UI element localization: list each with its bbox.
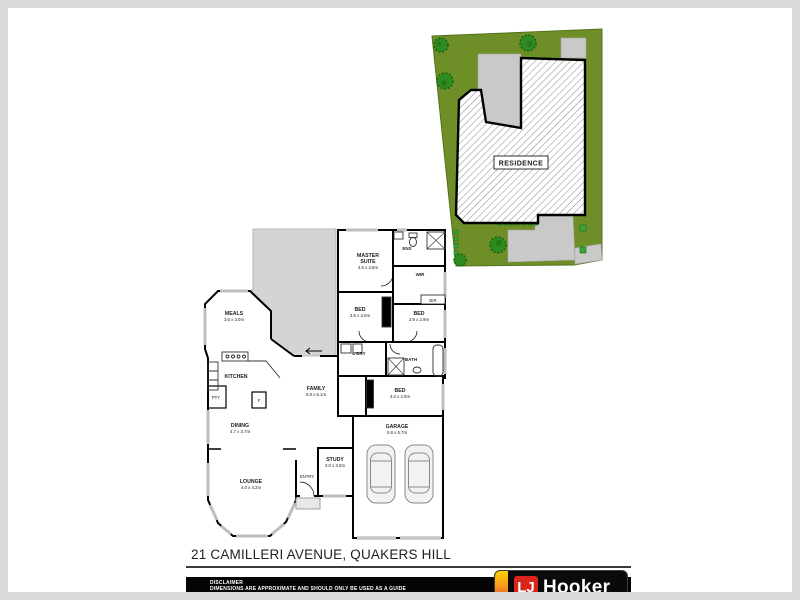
room-dims-garage: 5.8 x 5.7m	[387, 430, 407, 435]
room-dims-dining: 4.7 x 3.7m	[230, 429, 250, 434]
floor-plan: MASTER SUITE 4.6 x 3.8m ENS WIR BIR BED …	[205, 229, 445, 538]
room-label-wir: WIR	[416, 272, 425, 277]
floorplan-image: RESIDENCE	[0, 0, 800, 600]
room-dims-bed3: 2.9 x 2.9m	[409, 317, 429, 322]
room-label-pantry: PTY	[212, 395, 220, 400]
plan-canvas: RESIDENCE	[8, 8, 800, 600]
room-label-kitchen: KITCHEN	[224, 374, 247, 380]
room-label-bath: BATH	[405, 357, 417, 362]
disclaimer-text: DISCLAIMER DIMENSIONS ARE APPROXIMATE AN…	[210, 580, 406, 598]
footer-bar: DISCLAIMER DIMENSIONS ARE APPROXIMATE AN…	[186, 577, 631, 600]
car-icon	[367, 445, 395, 503]
room-dims-meals: 3.5 x 3.0m	[224, 317, 244, 322]
tree-icon	[434, 38, 448, 52]
logo-lj-mark: LJ	[514, 576, 538, 600]
logo-main: LJ Hooker	[508, 571, 627, 600]
room-label-fridge: F	[258, 398, 261, 403]
residence-label-box: RESIDENCE	[494, 156, 548, 169]
tree-icon	[520, 35, 536, 51]
site-plan: RESIDENCE	[432, 29, 602, 266]
tree-icon	[454, 254, 466, 266]
room-dims-master: 4.6 x 3.8m	[358, 265, 378, 270]
room-dims-bed4: 4.0 x 2.9m	[390, 394, 410, 399]
logo-gradient-stripe	[495, 571, 508, 600]
room-label-ens: ENS	[402, 246, 411, 251]
logo-wordmark: Hooker	[543, 577, 610, 599]
address-divider	[186, 566, 631, 568]
ljhooker-logo: LJ Hooker	[494, 570, 628, 600]
room-dims-study: 3.0 x 3.0m	[325, 463, 345, 468]
room-dims-bed2: 3.5 x 3.0m	[350, 313, 370, 318]
tree-icon	[437, 73, 453, 89]
room-dims-family: 5.9 x 5.1m	[306, 392, 326, 397]
car-icon	[405, 445, 433, 503]
room-label-ldry: L'DRY	[352, 351, 365, 356]
residence-label: RESIDENCE	[499, 161, 543, 168]
tree-icon	[490, 237, 506, 253]
property-address: 21 CAMILLERI AVENUE, QUAKERS HILL	[176, 547, 466, 562]
patio-area	[250, 229, 336, 356]
disclaimer-line2: THEY ARE NOT TO SCALE AND NO LIABILITY W…	[210, 592, 406, 598]
room-label-entry: ENTRY	[300, 474, 315, 479]
room-dims-lounge: 4.0 x 4.2m	[241, 485, 261, 490]
room-label-bir: BIR	[429, 298, 436, 303]
